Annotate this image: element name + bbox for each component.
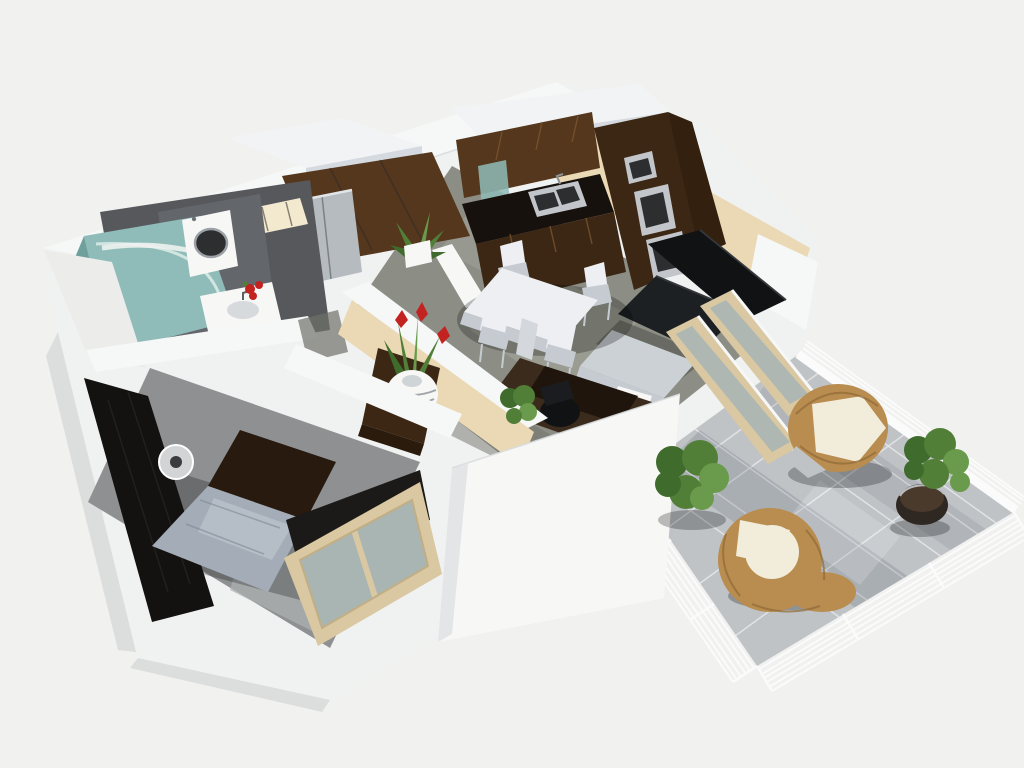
rattan-armchair [786,384,892,488]
lamp-core [170,456,182,468]
plant-foliage [519,403,537,421]
floor-plan-svg [0,0,1024,768]
shrub-foliage [655,471,681,497]
washing-machine [182,210,238,277]
flower-leaf [243,282,248,287]
shrub-foliage [904,460,924,480]
washer-dial [192,217,196,221]
shrub-shadow [658,510,726,530]
bedside-lamp [159,445,193,479]
flower [255,281,263,289]
plant-foliage [506,408,522,424]
plant-foliage [513,385,535,407]
shrub-foliage [690,486,714,510]
flower [249,292,257,300]
apartment-render [0,0,1024,768]
shrub-foliage [919,459,949,489]
basin-bowl [227,301,259,319]
lounge-tail [788,572,856,612]
vase-opening [402,375,422,387]
shrub-foliage [950,472,970,492]
